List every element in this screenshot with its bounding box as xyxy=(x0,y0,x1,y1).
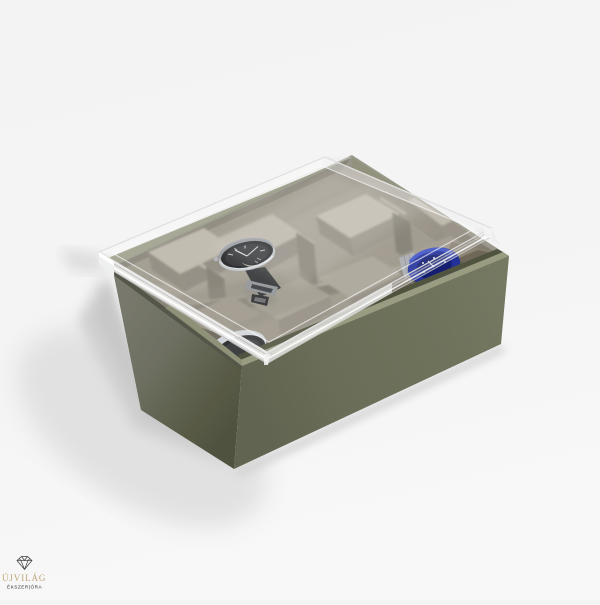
svg-text:ÚJVILÁG: ÚJVILÁG xyxy=(2,573,46,583)
svg-text:ÉKSZER|ÓRA: ÉKSZER|ÓRA xyxy=(7,584,43,590)
